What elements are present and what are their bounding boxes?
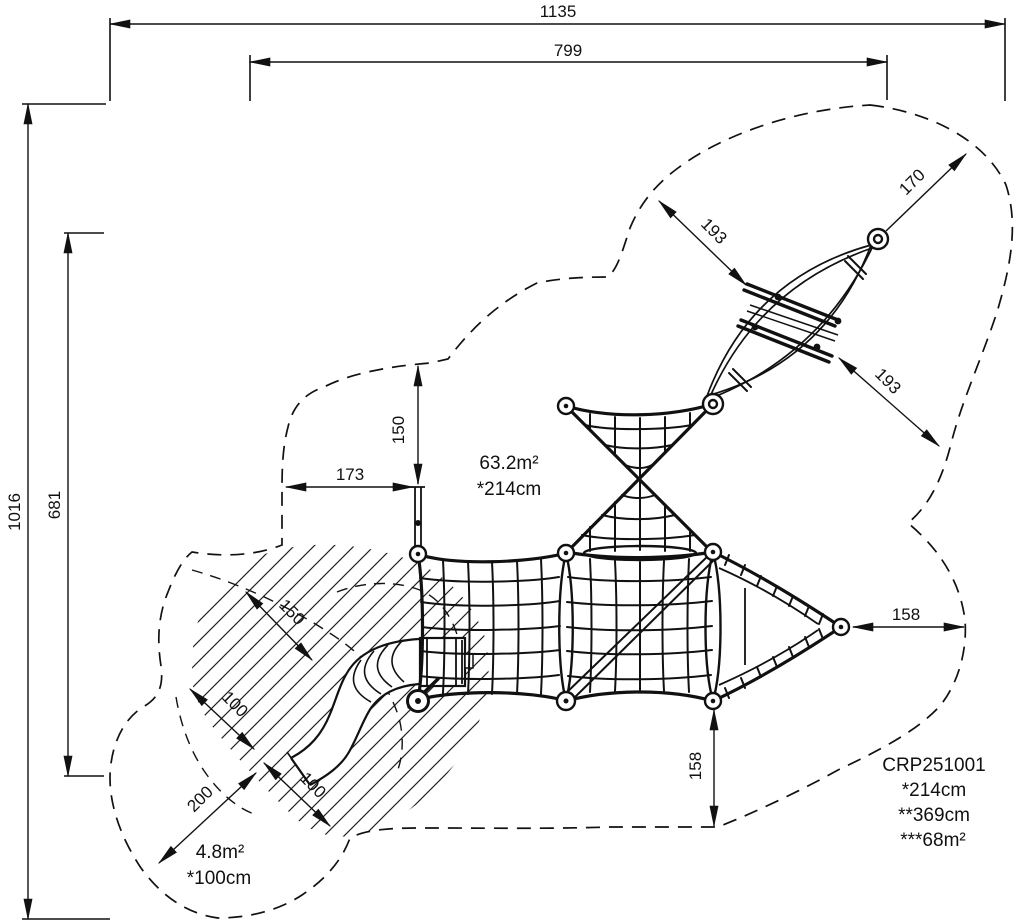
product-legend: CRP251001 *214cm **369cm ***68m² xyxy=(882,755,986,851)
main-area-value: 63.2m² xyxy=(479,453,538,474)
dimension-apex-bottom-clearance: 158 xyxy=(686,710,714,826)
dim-leaf-lower-clearance-label: 193 xyxy=(871,364,904,397)
dim-apex-bottom-clearance-label: 158 xyxy=(686,752,705,780)
legend-note-1: *214cm xyxy=(902,780,966,801)
dimension-leaf-top-clearance: 170 xyxy=(886,154,966,231)
dim-inner-width-label: 799 xyxy=(554,41,582,60)
dim-post-side-clearance-label: 173 xyxy=(336,465,364,484)
dim-apex-side-clearance-label: 158 xyxy=(892,605,920,624)
safety-zone-outline xyxy=(110,105,1012,918)
slide-area-annotation: 4.8m² *100cm xyxy=(187,842,251,889)
product-code: CRP251001 xyxy=(882,755,986,776)
dim-inner-height-label: 681 xyxy=(45,491,64,519)
playground-plan-drawing: 1135 799 1016 681 150 173 193 170 193 15… xyxy=(0,0,1024,924)
x-net xyxy=(566,404,713,553)
main-area-annotation: 63.2m² *214cm xyxy=(477,453,541,500)
dim-slide-runout-length-label: 200 xyxy=(183,782,216,815)
legend-note-3: ***68m² xyxy=(900,830,965,851)
rope-swing-element xyxy=(707,245,872,399)
main-area-note: *214cm xyxy=(477,479,541,500)
slide-area-value: 4.8m² xyxy=(196,842,245,863)
support-pole xyxy=(411,487,425,551)
dim-overall-width-label: 1135 xyxy=(540,2,577,21)
technical-drawing-page: 1135 799 1016 681 150 173 193 170 193 15… xyxy=(0,0,1024,924)
dimension-inner-height: 681 xyxy=(45,233,104,776)
climbing-net-right xyxy=(559,546,720,703)
dimension-inner-width: 799 xyxy=(250,41,887,101)
dim-post-top-clearance-label: 150 xyxy=(389,416,408,444)
dimension-post-side-clearance: 173 xyxy=(286,465,413,487)
dim-overall-height-label: 1016 xyxy=(5,493,24,531)
dimension-post-top-clearance: 150 xyxy=(389,366,418,484)
triangle-net xyxy=(713,552,841,701)
dimension-leaf-upper-clearance: 193 xyxy=(659,201,746,285)
dimension-apex-side-clearance: 158 xyxy=(853,605,964,627)
dimension-leaf-lower-clearance: 193 xyxy=(839,358,939,446)
legend-note-2: **369cm xyxy=(898,805,970,826)
slide-area-note: *100cm xyxy=(187,868,251,889)
